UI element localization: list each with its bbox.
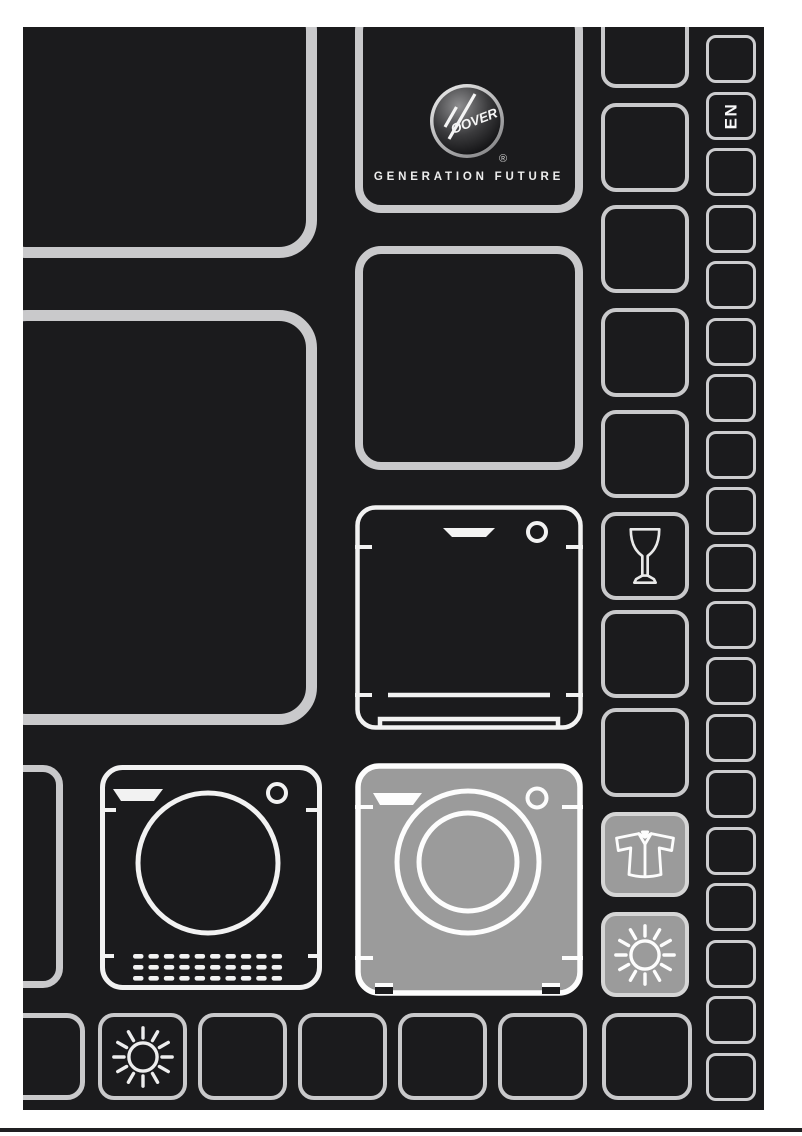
grid-square	[601, 27, 689, 88]
grid-frame-top-left	[23, 27, 317, 258]
sun-icon	[108, 1022, 178, 1092]
sun-square-right	[601, 912, 689, 997]
grid-square	[706, 35, 756, 83]
grid-square	[601, 708, 689, 797]
tumble-dryer-icon	[100, 765, 322, 990]
grid-square	[706, 318, 756, 366]
wine-glass-icon	[623, 524, 667, 588]
hoover-brand-panel: OOVER ® GENERATION FUTURE	[355, 27, 583, 213]
grid-square	[706, 374, 756, 422]
brand-tagline: GENERATION FUTURE	[363, 171, 575, 183]
dishwasher-icon	[355, 505, 583, 730]
manual-cover-page: OOVER ® GENERATION FUTURE	[0, 0, 802, 1136]
language-code-label: EN	[721, 102, 741, 129]
grid-square	[706, 827, 756, 875]
grid-frame-left-tall	[23, 310, 317, 725]
wine-glass-square	[601, 512, 689, 600]
page-footer-rule	[0, 1128, 802, 1132]
grid-square	[601, 610, 689, 698]
grid-square	[601, 308, 689, 397]
grid-square	[706, 714, 756, 762]
grid-square	[706, 996, 756, 1044]
grid-square	[706, 883, 756, 931]
grid-square	[706, 261, 756, 309]
sun-icon	[610, 920, 680, 990]
hoover-logo-badge: OOVER ®	[363, 81, 575, 165]
grid-square	[706, 657, 756, 705]
language-tab-en: EN	[706, 92, 756, 140]
grid-frame-left-strip	[23, 765, 63, 988]
grid-square	[706, 1053, 756, 1101]
grid-square	[298, 1013, 387, 1100]
grid-square	[601, 205, 689, 293]
sun-square-bottom	[98, 1013, 187, 1100]
grid-square	[706, 601, 756, 649]
grid-square	[706, 770, 756, 818]
grid-square	[23, 1013, 85, 1100]
shirt-icon	[607, 823, 683, 887]
grid-square	[706, 148, 756, 196]
grid-square	[706, 205, 756, 253]
grid-square	[498, 1013, 587, 1100]
washing-machine-icon	[355, 763, 583, 1000]
grid-square	[398, 1013, 487, 1100]
grid-square	[706, 940, 756, 988]
grid-square	[706, 431, 756, 479]
grid-square	[602, 1013, 692, 1100]
shirt-square	[601, 812, 689, 897]
grid-square	[706, 487, 756, 535]
cover-black-canvas: OOVER ® GENERATION FUTURE	[23, 27, 764, 1110]
grid-square	[706, 544, 756, 592]
registered-mark: ®	[499, 153, 507, 165]
grid-square	[601, 103, 689, 192]
grid-frame-center	[355, 246, 583, 470]
grid-square	[601, 410, 689, 498]
grid-square	[198, 1013, 287, 1100]
dryer-vent-grid	[133, 954, 282, 981]
